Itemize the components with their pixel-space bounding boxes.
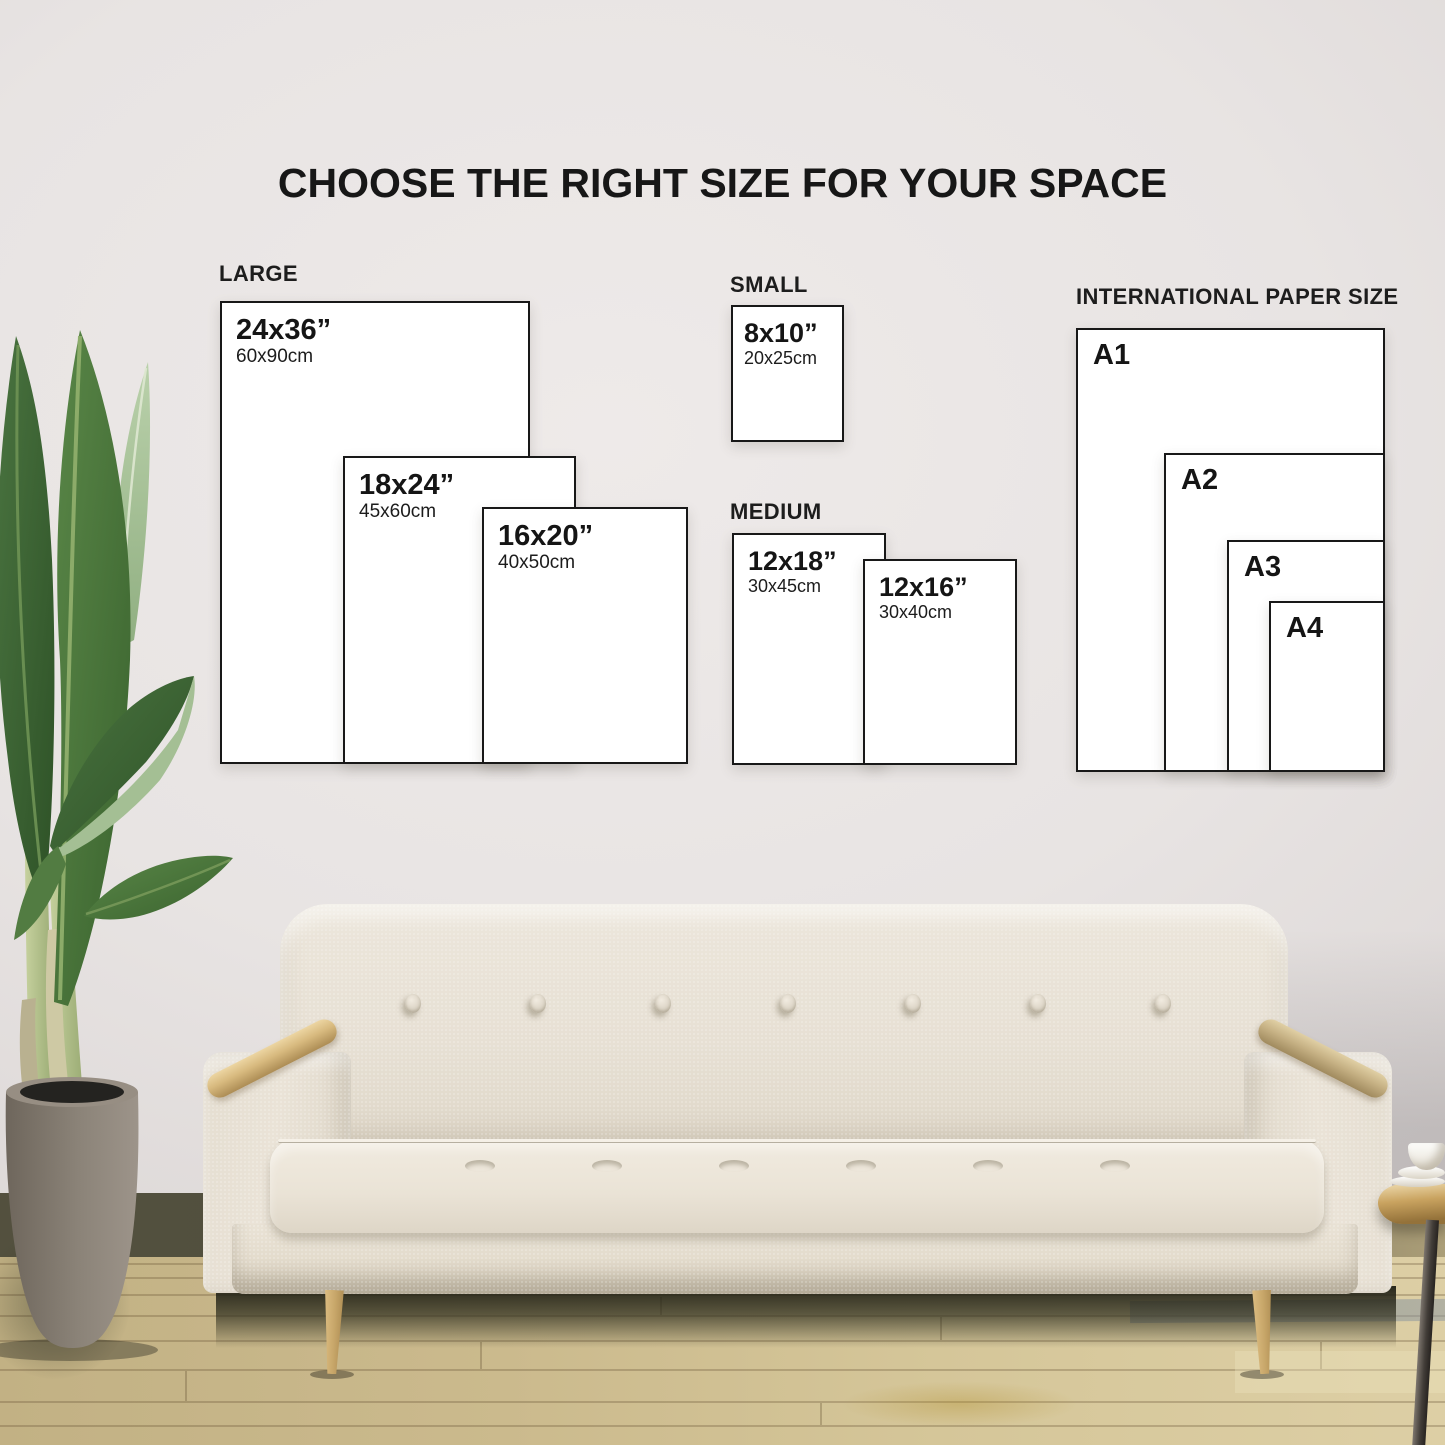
- paper-size-label: A4: [1271, 603, 1383, 643]
- tufting-button: [530, 994, 546, 1013]
- poster-size-inches: 12x18”: [734, 535, 884, 575]
- poster-size-inches: 16x20”: [484, 509, 686, 551]
- seat-tuft: [592, 1160, 622, 1172]
- sofa-base: [232, 1224, 1358, 1294]
- poster-size-inches: 18x24”: [345, 458, 574, 500]
- tufting-button: [405, 994, 421, 1013]
- poster-8x10: 8x10” 20x25cm: [731, 305, 844, 442]
- group-label-medium: MEDIUM: [730, 501, 822, 523]
- tufting-button: [905, 994, 921, 1013]
- tufting-button: [780, 994, 796, 1013]
- seat-tuft: [719, 1160, 749, 1172]
- poster-size-cm: 30x45cm: [734, 575, 884, 597]
- plant-leaf: [0, 336, 54, 905]
- group-label-international: INTERNATIONAL PAPER SIZE: [1076, 286, 1399, 308]
- paper-size-label: A1: [1078, 330, 1383, 370]
- paper-size-label: A2: [1166, 455, 1383, 495]
- paper-size-label: A3: [1229, 542, 1383, 582]
- poster-size-cm: 20x25cm: [733, 347, 842, 369]
- poster-size-inches: 8x10”: [733, 307, 842, 347]
- planter-pot: [6, 1092, 139, 1348]
- poster-size-guide-image: CHOOSE THE RIGHT SIZE FOR YOUR SPACE LAR…: [0, 0, 1445, 1445]
- tufting-button: [655, 994, 671, 1013]
- poster-size-inches: 12x16”: [865, 561, 1015, 601]
- tufting-button: [1030, 994, 1046, 1013]
- poster-12x16: 12x16” 30x40cm: [863, 559, 1017, 765]
- sofa-floor-shadow: [216, 1286, 1396, 1348]
- floor-plank-joint: [820, 1403, 822, 1425]
- paper-a4: A4: [1269, 601, 1385, 772]
- seat-cushion: [270, 1139, 1324, 1233]
- floor-stain: [840, 1381, 1080, 1427]
- pot-soil: [20, 1081, 124, 1103]
- side-table-top: [1378, 1184, 1445, 1224]
- group-label-small: SMALL: [730, 274, 808, 296]
- sofa-backrest: [280, 904, 1288, 1154]
- seat-tuft: [973, 1160, 1003, 1172]
- tufting-button: [1155, 994, 1171, 1013]
- poster-size-cm: 30x40cm: [865, 601, 1015, 623]
- poster-size-cm: 40x50cm: [484, 551, 686, 574]
- poster-16x20: 16x20” 40x50cm: [482, 507, 688, 764]
- seat-tuft: [465, 1160, 495, 1172]
- seat-tuft: [846, 1160, 876, 1172]
- seat-tuft: [1100, 1160, 1130, 1172]
- potted-plant: [0, 0, 340, 1445]
